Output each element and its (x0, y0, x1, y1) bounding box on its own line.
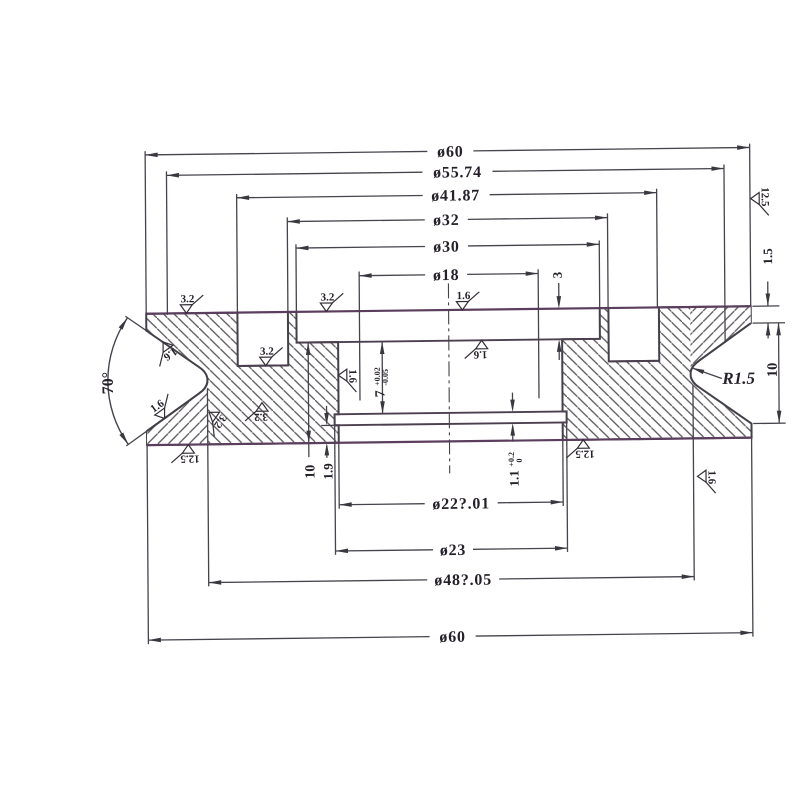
svg-text:ø60: ø60 (437, 143, 464, 160)
svg-text:0: 0 (515, 458, 524, 462)
svg-text:1.6: 1.6 (346, 369, 358, 383)
svg-text:12.5: 12.5 (180, 452, 200, 464)
svg-text:70°: 70° (100, 372, 117, 395)
svg-text:10: 10 (765, 363, 781, 378)
svg-text:12.5: 12.5 (759, 187, 771, 207)
svg-text:1.9: 1.9 (320, 463, 335, 480)
svg-text:ø30: ø30 (433, 239, 460, 256)
svg-text:ø48?.05: ø48?.05 (434, 572, 492, 590)
svg-text:3.2: 3.2 (181, 293, 195, 305)
svg-text:1.6: 1.6 (473, 348, 487, 360)
svg-text:3.2: 3.2 (260, 346, 274, 358)
svg-text:ø18: ø18 (433, 267, 460, 284)
svg-text:10: 10 (303, 465, 318, 479)
svg-text:1.1: 1.1 (506, 470, 521, 486)
svg-text:ø60: ø60 (439, 629, 466, 646)
svg-text:ø32: ø32 (433, 212, 460, 229)
svg-text:-0.05: -0.05 (381, 369, 390, 386)
svg-text:12.5: 12.5 (575, 448, 595, 460)
svg-text:R1.5: R1.5 (721, 369, 755, 388)
svg-text:1.6: 1.6 (457, 290, 471, 302)
svg-text:7: 7 (373, 390, 388, 397)
svg-text:ø55.74: ø55.74 (433, 164, 482, 182)
svg-text:1.5: 1.5 (760, 248, 775, 265)
svg-text:1.6: 1.6 (705, 470, 717, 484)
svg-text:3: 3 (550, 271, 565, 278)
svg-text:ø23: ø23 (440, 542, 467, 559)
svg-text:ø41.87: ø41.87 (431, 187, 480, 205)
svg-text:3.2: 3.2 (321, 291, 335, 303)
svg-text:3.2: 3.2 (254, 411, 268, 423)
svg-text:ø22?.01: ø22?.01 (432, 495, 490, 513)
